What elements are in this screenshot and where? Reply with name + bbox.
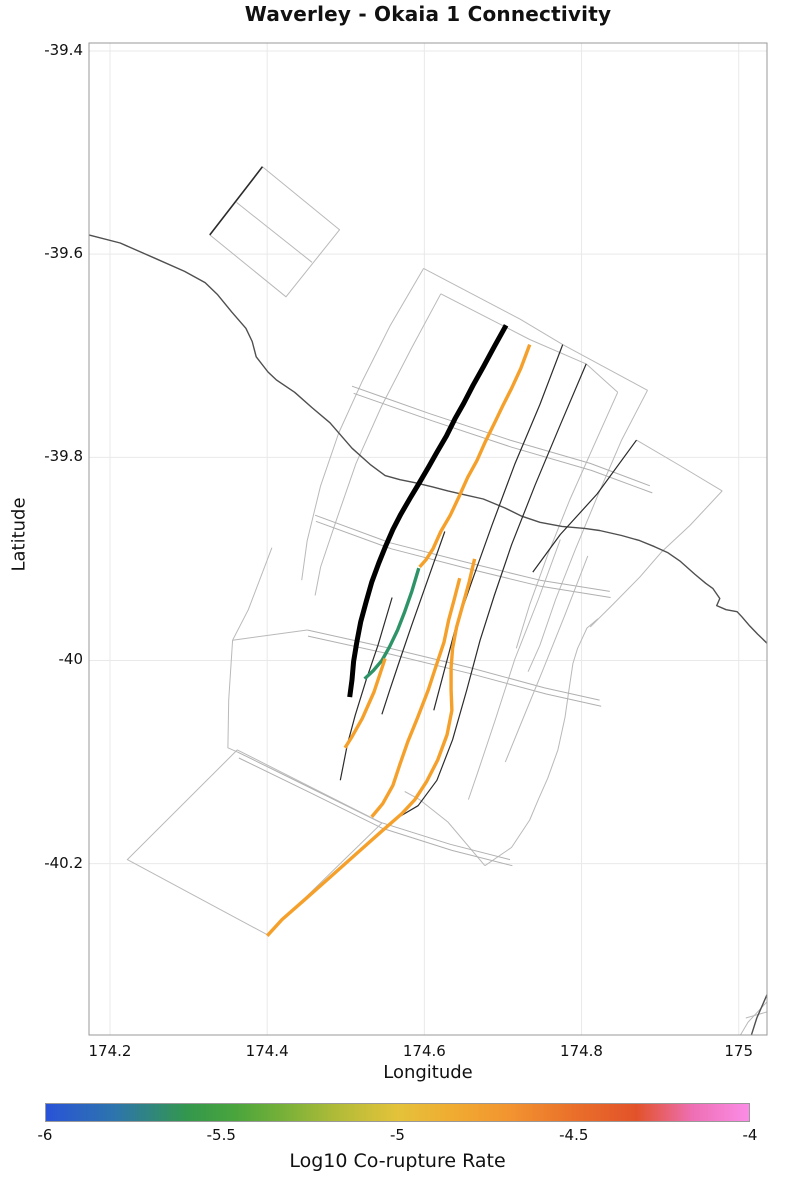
map-plot-area	[0, 0, 800, 1185]
y-tick-label: -39.8	[3, 447, 83, 465]
fault-outline-rect-inner	[237, 202, 313, 262]
figure-root: Waverley - Okaia 1 Connectivity Latitude…	[0, 0, 800, 1185]
plot-border	[89, 43, 767, 1035]
corupture-orange-c	[267, 559, 474, 936]
coastline-corner-se	[751, 995, 767, 1036]
x-tick-label: 174.4	[227, 1042, 307, 1060]
outline-long-b	[315, 294, 441, 596]
outline-west-link	[233, 630, 308, 640]
cross-trace-4a	[237, 752, 510, 860]
outline-southeast-return	[405, 792, 485, 866]
outline-east-top	[637, 440, 723, 491]
outline-east-sw	[590, 491, 722, 627]
x-tick-label: 174.6	[384, 1042, 464, 1060]
colorbar-gradient	[45, 1103, 750, 1122]
x-tick-label: 175	[699, 1042, 779, 1060]
y-tick-label: -40	[3, 650, 83, 668]
outline-apex-edge-1	[424, 268, 648, 390]
fault-trace-4	[382, 532, 445, 715]
waverley-fault-trace	[350, 325, 506, 697]
outline-east-a	[528, 390, 647, 671]
colorbar-tick-label: -5	[358, 1126, 438, 1144]
fault-outline-rect-north	[210, 167, 340, 297]
colorbar-tick-label: -6	[5, 1126, 85, 1144]
outline-mid-h	[468, 540, 560, 800]
colorbar-tick-label: -4	[710, 1126, 790, 1144]
coastline-main	[89, 235, 767, 643]
outline-south-quad	[127, 750, 382, 935]
outline-west	[228, 548, 272, 752]
cross-trace-1a	[352, 386, 650, 486]
x-axis-label: Longitude	[89, 1062, 767, 1083]
cross-trace-2b	[316, 521, 611, 597]
colorbar-label: Log10 Co-rupture Rate	[45, 1150, 750, 1172]
fault-trace-5	[340, 598, 392, 781]
corner-gray-1	[740, 1002, 767, 1036]
y-tick-label: -39.6	[3, 244, 83, 262]
fault-trace-rect-edge	[210, 167, 263, 235]
colorbar-tick-label: -5.5	[181, 1126, 261, 1144]
y-tick-label: -40.2	[3, 854, 83, 872]
outline-long-a	[302, 268, 424, 580]
x-tick-label: 174.2	[70, 1042, 150, 1060]
y-tick-label: -39.4	[3, 41, 83, 59]
outline-apex-edge-2	[441, 294, 618, 393]
colorbar-tick-label: -4.5	[534, 1126, 614, 1144]
x-tick-label: 174.8	[542, 1042, 622, 1060]
